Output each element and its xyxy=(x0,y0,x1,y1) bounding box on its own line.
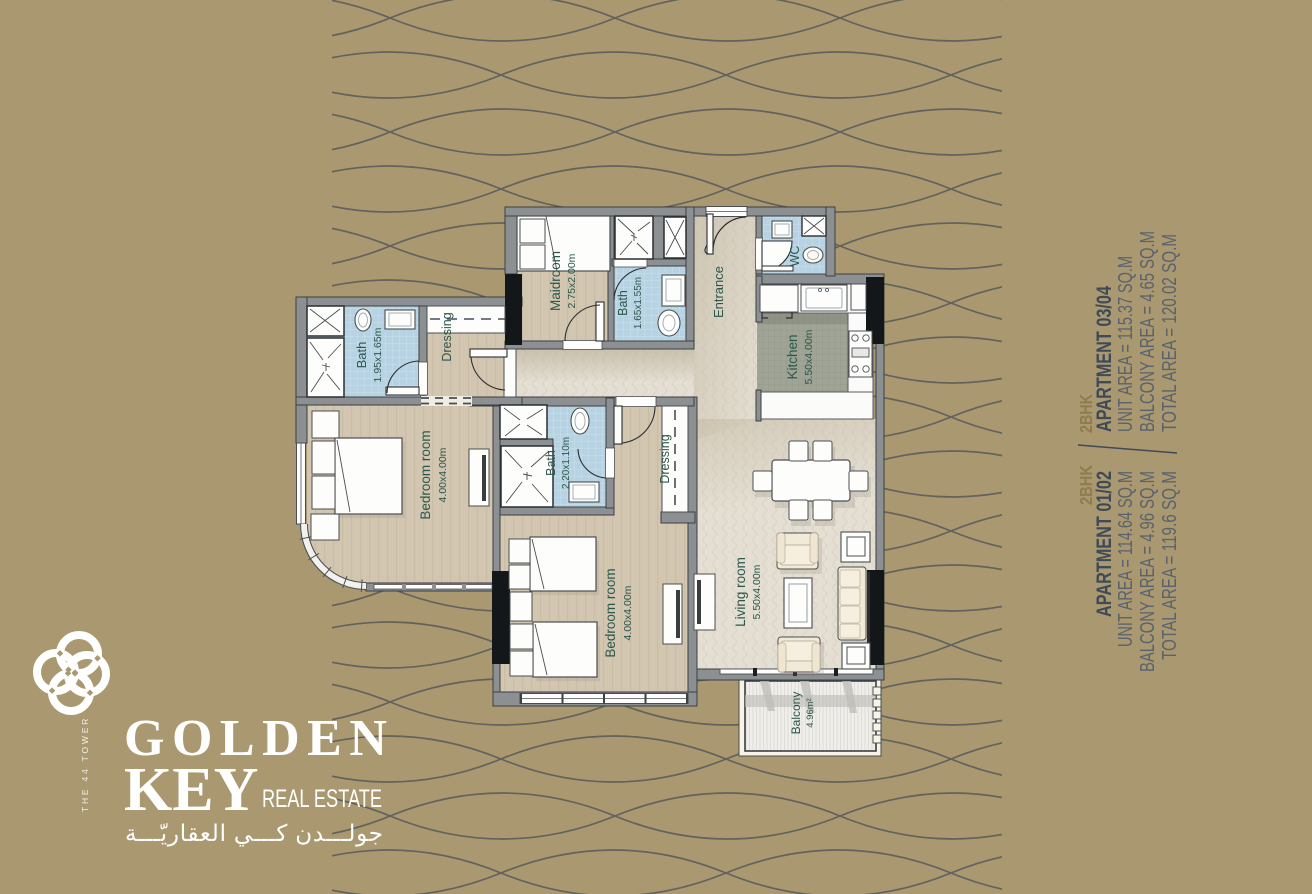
svg-text:REAL ESTATE: REAL ESTATE xyxy=(262,785,382,813)
svg-text:Maidroom: Maidroom xyxy=(548,251,563,311)
svg-text:TOTAL AREA = 119.6 SQ.M: TOTAL AREA = 119.6 SQ.M xyxy=(1158,471,1181,660)
svg-text:Bath: Bath xyxy=(544,450,558,476)
svg-text:5.50x4.00m: 5.50x4.00m xyxy=(803,329,815,384)
svg-text:WC: WC xyxy=(788,246,802,267)
svg-text:1.95x1.65m: 1.95x1.65m xyxy=(372,327,384,382)
svg-text:5.50x4.00m: 5.50x4.00m xyxy=(751,564,763,619)
svg-text:Dressing: Dressing xyxy=(440,312,454,361)
svg-text:Entrance: Entrance xyxy=(711,266,726,318)
svg-text:4.00x4.00m: 4.00x4.00m xyxy=(437,447,449,502)
svg-text:UNIT AREA = 115.37 SQ.M: UNIT AREA = 115.37 SQ.M xyxy=(1114,256,1137,432)
svg-text:1.65x1.55m: 1.65x1.55m xyxy=(633,277,644,329)
svg-text:APARTMENT 01/02: APARTMENT 01/02 xyxy=(1093,471,1116,617)
svg-text:Bedroom room: Bedroom room xyxy=(418,430,433,519)
svg-text:Living room: Living room xyxy=(733,557,748,627)
svg-text:Bedroom room: Bedroom room xyxy=(603,568,618,657)
svg-text:KEY: KEY xyxy=(124,756,258,824)
svg-text:APARTMENT 03/04: APARTMENT 03/04 xyxy=(1093,286,1116,432)
svg-text:4.96m²: 4.96m² xyxy=(805,698,816,728)
svg-text:Dressing: Dressing xyxy=(658,434,672,483)
svg-text:TOTAL AREA = 120.02 SQ.M: TOTAL AREA = 120.02 SQ.M xyxy=(1158,234,1181,432)
svg-text:THE 44 TOWER: THE 44 TOWER xyxy=(80,716,90,812)
svg-text:BALCONY AREA = 4.65 SQ.M: BALCONY AREA = 4.65 SQ.M xyxy=(1136,231,1159,432)
svg-text:Bath: Bath xyxy=(616,290,630,316)
svg-text:BALCONY AREA = 4.96 SQ.M: BALCONY AREA = 4.96 SQ.M xyxy=(1136,471,1159,672)
svg-text:جولـــدن كـــي العقاريّـــة: جولـــدن كـــي العقاريّـــة xyxy=(125,820,383,847)
svg-text:Balcony: Balcony xyxy=(789,692,803,735)
svg-text:4.00x4.00m: 4.00x4.00m xyxy=(622,585,634,640)
svg-text:Kitchen: Kitchen xyxy=(785,334,800,379)
svg-text:Bath: Bath xyxy=(354,342,369,369)
svg-text:2.20x1.10m: 2.20x1.10m xyxy=(561,437,572,489)
svg-text:UNIT AREA = 114.64 SQ.M: UNIT AREA = 114.64 SQ.M xyxy=(1114,471,1137,647)
svg-text:2.75x2.00m: 2.75x2.00m xyxy=(566,253,578,308)
